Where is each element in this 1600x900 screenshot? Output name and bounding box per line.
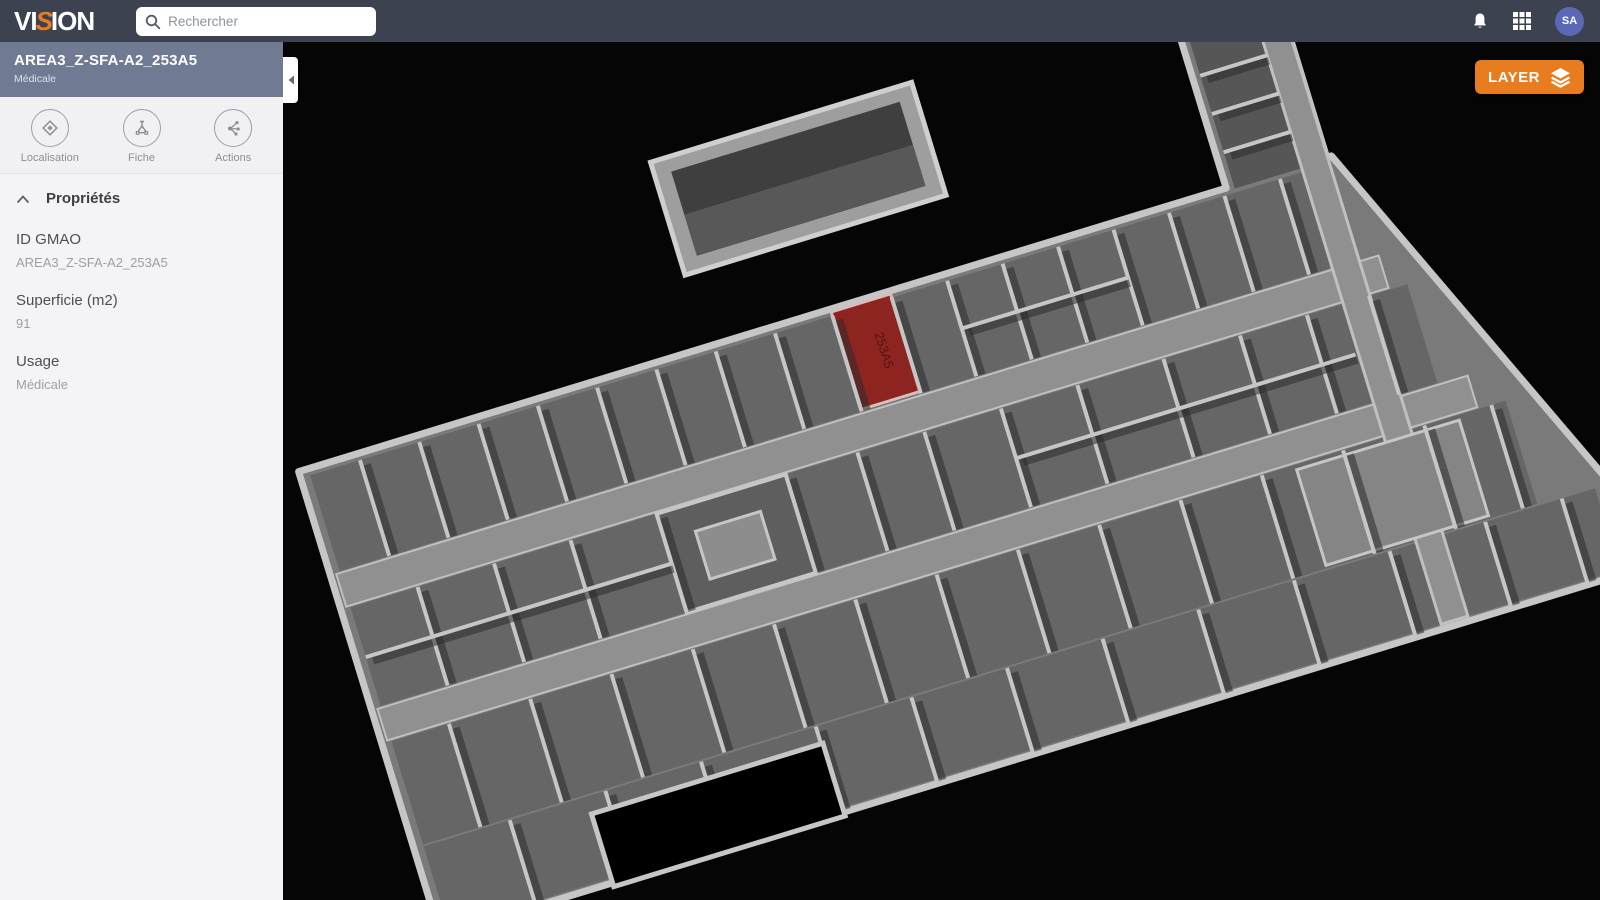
chevron-up-icon bbox=[16, 194, 30, 204]
app-logo: VI S ION bbox=[14, 6, 94, 37]
apps-grid-icon bbox=[1513, 12, 1531, 30]
action-fiche-label: Fiche bbox=[128, 152, 155, 164]
property-id-gmao: ID GMAO AREA3_Z-SFA-A2_253A5 bbox=[16, 231, 267, 270]
user-avatar[interactable]: SA bbox=[1555, 7, 1584, 36]
selection-subtitle: Médicale bbox=[14, 73, 269, 85]
chevron-left-icon bbox=[287, 74, 295, 86]
search-input[interactable] bbox=[136, 7, 376, 36]
properties-section: Propriétés ID GMAO AREA3_Z-SFA-A2_253A5 … bbox=[0, 174, 283, 408]
actions-row: Localisation Fiche bbox=[0, 97, 283, 174]
logo-text-suffix: ION bbox=[51, 6, 94, 37]
properties-section-toggle[interactable]: Propriétés bbox=[16, 190, 120, 207]
selection-title: AREA3_Z-SFA-A2_253A5 bbox=[14, 52, 269, 69]
localisation-diamond-icon bbox=[31, 109, 69, 147]
property-label: Superficie (m2) bbox=[16, 292, 267, 309]
logo-text-prefix: VI bbox=[14, 6, 37, 37]
layer-button[interactable]: LAYER bbox=[1475, 60, 1584, 94]
search-box bbox=[136, 7, 376, 36]
action-fiche-button[interactable]: Fiche bbox=[96, 109, 188, 164]
property-label: Usage bbox=[16, 353, 267, 370]
property-label: ID GMAO bbox=[16, 231, 267, 248]
topbar-right: SA bbox=[1471, 7, 1584, 36]
property-value: Médicale bbox=[16, 377, 267, 392]
property-superficie: Superficie (m2) 91 bbox=[16, 292, 267, 331]
layers-icon bbox=[1550, 67, 1571, 88]
action-actions-button[interactable]: Actions bbox=[187, 109, 279, 164]
fiche-icon bbox=[123, 109, 161, 147]
notifications-button[interactable] bbox=[1471, 12, 1489, 31]
viewer-canvas: 253A5 LAYER bbox=[283, 42, 1600, 900]
properties-section-title: Propriétés bbox=[46, 190, 120, 207]
property-value: 91 bbox=[16, 316, 267, 331]
sidebar-collapse-button[interactable] bbox=[283, 57, 298, 103]
action-actions-label: Actions bbox=[215, 152, 251, 164]
property-value: AREA3_Z-SFA-A2_253A5 bbox=[16, 255, 267, 270]
property-usage: Usage Médicale bbox=[16, 353, 267, 392]
logo-accent-letter: S bbox=[36, 6, 52, 37]
floorplan-3d-scene[interactable]: 253A5 bbox=[283, 42, 1600, 900]
topbar: VI S ION SA bbox=[0, 0, 1600, 42]
action-localisation-label: Localisation bbox=[21, 152, 79, 164]
bell-icon bbox=[1471, 12, 1489, 31]
actions-network-icon bbox=[214, 109, 252, 147]
apps-grid-button[interactable] bbox=[1513, 12, 1531, 30]
main-area: AREA3_Z-SFA-A2_253A5 Médicale Localisati… bbox=[0, 42, 1600, 900]
sidebar: AREA3_Z-SFA-A2_253A5 Médicale Localisati… bbox=[0, 42, 283, 900]
layer-button-label: LAYER bbox=[1488, 69, 1540, 86]
search-icon bbox=[145, 14, 161, 30]
action-localisation-button[interactable]: Localisation bbox=[4, 109, 96, 164]
selection-header: AREA3_Z-SFA-A2_253A5 Médicale bbox=[0, 42, 283, 97]
